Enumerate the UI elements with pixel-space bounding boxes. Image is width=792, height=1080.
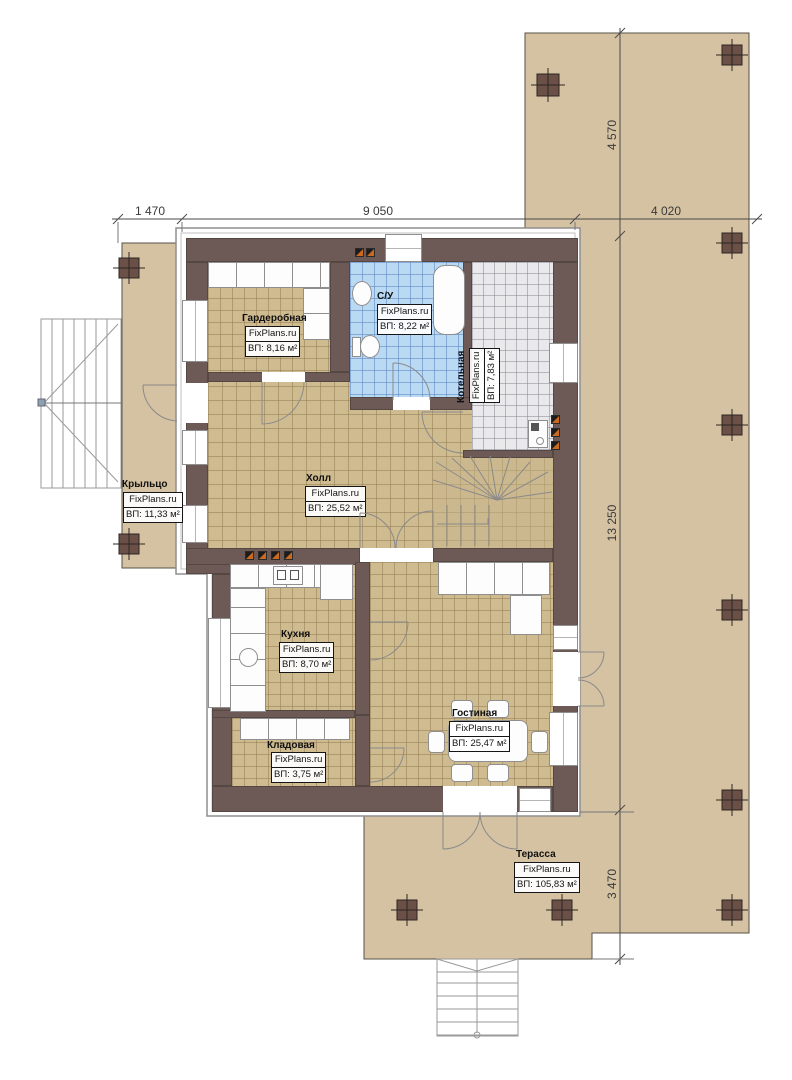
- area-text: ВП: 7,83 м²: [485, 349, 499, 402]
- porch-steps: [38, 319, 121, 488]
- door-opening-wardrobe: [262, 372, 305, 382]
- room-name-hall: Холл: [306, 473, 331, 484]
- area-text: ВП: 8,22 м²: [378, 320, 431, 334]
- floor-plan: Гардеробная FixPlans.ru ВП: 8,16 м² С/У …: [0, 0, 792, 1080]
- stove-burner: [290, 570, 299, 580]
- area-text: ВП: 25,47 м²: [450, 737, 509, 751]
- kitchen-sink: [239, 648, 258, 667]
- pantry-shelves: [240, 718, 350, 740]
- radiator-icon: [271, 551, 280, 560]
- room-name-boiler: Котельная: [456, 333, 467, 403]
- room-name-kitchen: Кухня: [281, 629, 310, 640]
- window-top: [385, 234, 422, 262]
- dim-right-2: 13 250: [605, 489, 619, 557]
- room-name-porch: Крыльцо: [122, 479, 168, 490]
- boiler-dial: [536, 437, 544, 445]
- room-label-pantry: FixPlans.ru ВП: 3,75 м²: [271, 752, 326, 783]
- wall-kitchen-living: [355, 562, 370, 715]
- toilet-bowl: [360, 335, 380, 358]
- door-opening-porch: [184, 383, 208, 423]
- wall-wardrobe-right: [330, 262, 350, 372]
- stove-burner: [277, 570, 286, 580]
- window-left-3: [182, 505, 208, 543]
- area-text: ВП: 25,52 м²: [306, 502, 365, 516]
- dim-right-1: 4 570: [605, 105, 619, 165]
- chair: [451, 764, 473, 782]
- window-right-2: [553, 625, 578, 650]
- room-label-living: FixPlans.ru ВП: 25,47 м²: [449, 721, 510, 752]
- room-label-hall: FixPlans.ru ВП: 25,52 м²: [305, 486, 366, 517]
- sofa-back: [438, 562, 550, 595]
- radiator-icon: [258, 551, 267, 560]
- fridge: [320, 564, 353, 600]
- radiator-icon: [551, 428, 560, 437]
- wall-boiler-bottom: [463, 450, 553, 458]
- terrace-steps: [437, 959, 518, 1038]
- window-bottom: [519, 788, 551, 812]
- brand-text: FixPlans.ru: [306, 487, 365, 502]
- room-name-terrace: Терасса: [516, 849, 556, 860]
- radiator-icon: [366, 248, 375, 257]
- room-name-pantry: Кладовая: [267, 740, 315, 751]
- chair: [531, 731, 548, 753]
- bathtub: [433, 265, 465, 335]
- window-right-1: [549, 343, 578, 383]
- wall-pantry-living: [355, 715, 370, 786]
- area-text: ВП: 3,75 м²: [272, 768, 325, 782]
- stair-zone: [433, 458, 553, 548]
- door-opening-terrace-right: [553, 652, 580, 706]
- door-opening-bathroom: [393, 397, 430, 410]
- chair: [428, 731, 445, 753]
- area-text: ВП: 8,70 м²: [280, 658, 333, 672]
- area-text: ВП: 8,16 м²: [246, 342, 299, 356]
- wardrobe-closet-top: [208, 262, 330, 288]
- room-label-wardrobe: FixPlans.ru ВП: 8,16 м²: [245, 326, 300, 357]
- dim-right-3: 3 470: [605, 854, 619, 914]
- room-label-porch: FixPlans.ru ВП: 11,33 м²: [123, 492, 183, 523]
- brand-text: FixPlans.ru: [450, 722, 509, 737]
- room-label-boiler: Котельная FixPlans.ru ВП: 7,83 м²: [456, 333, 540, 403]
- room-name-bathroom: С/У: [377, 291, 393, 302]
- dim-top-3: 4 020: [636, 204, 696, 218]
- room-label-terrace: FixPlans.ru ВП: 105,83 м²: [514, 862, 580, 893]
- bathroom-sink: [352, 281, 372, 306]
- room-name-wardrobe: Гардеробная: [242, 313, 307, 324]
- window-left-1: [182, 300, 208, 362]
- wall-top: [186, 238, 578, 262]
- brand-text: FixPlans.ru: [515, 863, 579, 878]
- radiator-icon: [245, 551, 254, 560]
- brand-text: FixPlans.ru: [246, 327, 299, 342]
- area-text: ВП: 105,83 м²: [515, 878, 579, 892]
- room-label-bathroom: FixPlans.ru ВП: 8,22 м²: [377, 304, 432, 335]
- chair: [487, 764, 509, 782]
- dim-top-1: 1 470: [120, 204, 180, 218]
- window-left-2: [182, 430, 208, 465]
- dim-top-2: 9 050: [348, 204, 408, 218]
- door-opening-terrace-bottom: [443, 786, 517, 812]
- radiator-icon: [551, 441, 560, 450]
- window-kitchen: [208, 618, 232, 708]
- brand-text: FixPlans.ru: [280, 643, 333, 658]
- sofa-side: [510, 595, 542, 635]
- room-label-kitchen: FixPlans.ru ВП: 8,70 м²: [279, 642, 334, 673]
- room-name-living: Гостиная: [452, 708, 497, 719]
- radiator-icon: [551, 415, 560, 424]
- brand-text: FixPlans.ru: [378, 305, 431, 320]
- boiler-panel: [531, 423, 539, 431]
- wardrobe-closet-right: [303, 288, 330, 340]
- brand-text: FixPlans.ru: [124, 493, 182, 508]
- wall-hall-living: [433, 548, 553, 562]
- brand-text: FixPlans.ru: [272, 753, 325, 768]
- area-text: ВП: 11,33 м²: [124, 508, 182, 522]
- radiator-icon: [284, 551, 293, 560]
- window-right-3: [549, 712, 578, 766]
- radiator-icon: [355, 248, 364, 257]
- brand-text: FixPlans.ru: [470, 349, 485, 402]
